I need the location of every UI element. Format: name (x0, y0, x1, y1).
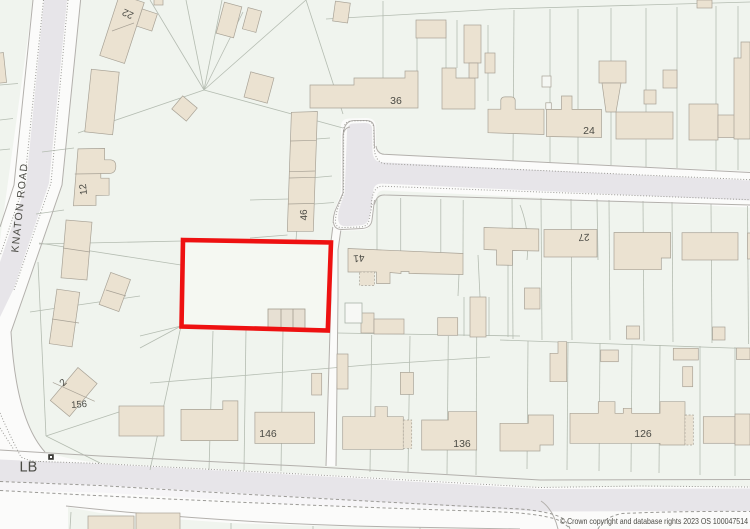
svg-text:41: 41 (352, 252, 364, 264)
svg-text:27: 27 (578, 231, 590, 243)
svg-text:36: 36 (390, 95, 402, 107)
svg-text:24: 24 (583, 125, 595, 137)
svg-text:136: 136 (453, 438, 471, 450)
svg-text:LB: LB (20, 460, 38, 476)
svg-text:46: 46 (299, 209, 310, 221)
svg-text:156: 156 (71, 399, 88, 411)
svg-text:126: 126 (634, 428, 652, 440)
svg-text:12: 12 (78, 183, 90, 196)
svg-text:© Crown copyright and database: © Crown copyright and database rights 20… (560, 516, 748, 526)
svg-text:146: 146 (259, 428, 277, 440)
